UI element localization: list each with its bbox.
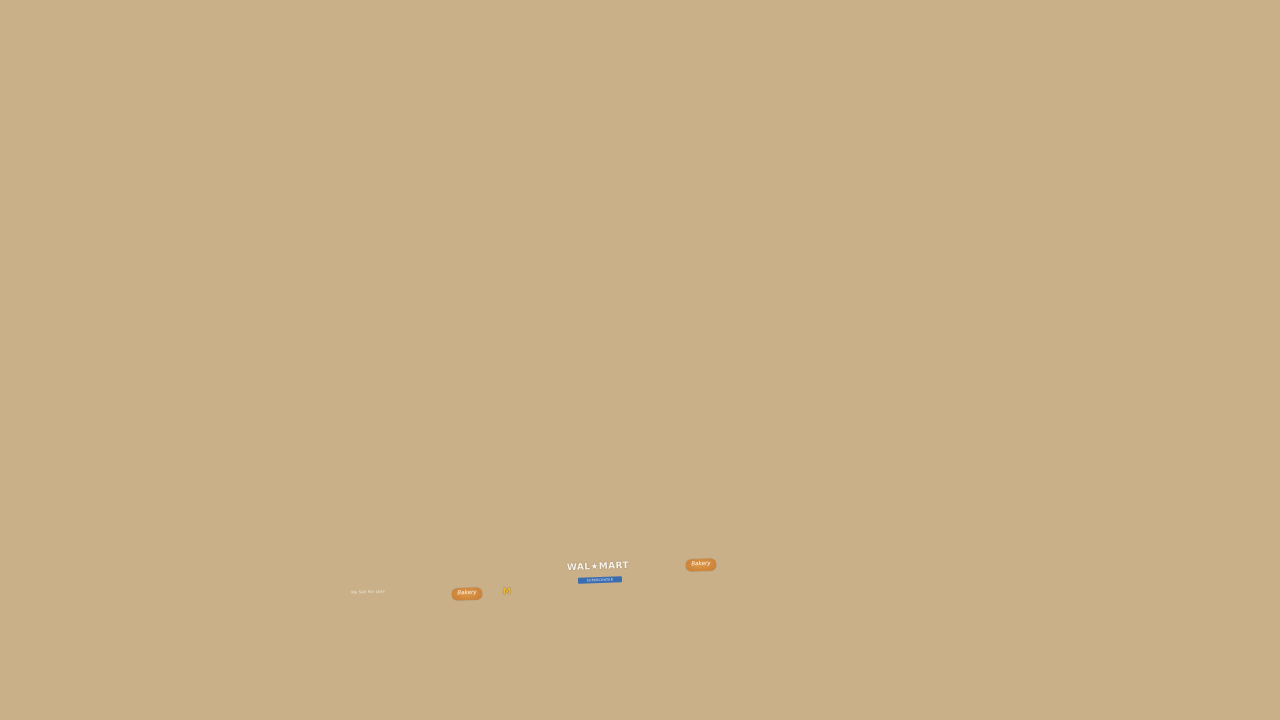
aerial-scene (0, 0, 1280, 720)
aerial-photo-walmart-suburb: WAL★MART SUPERCENTER We Sell For Less Ba… (0, 0, 1280, 720)
